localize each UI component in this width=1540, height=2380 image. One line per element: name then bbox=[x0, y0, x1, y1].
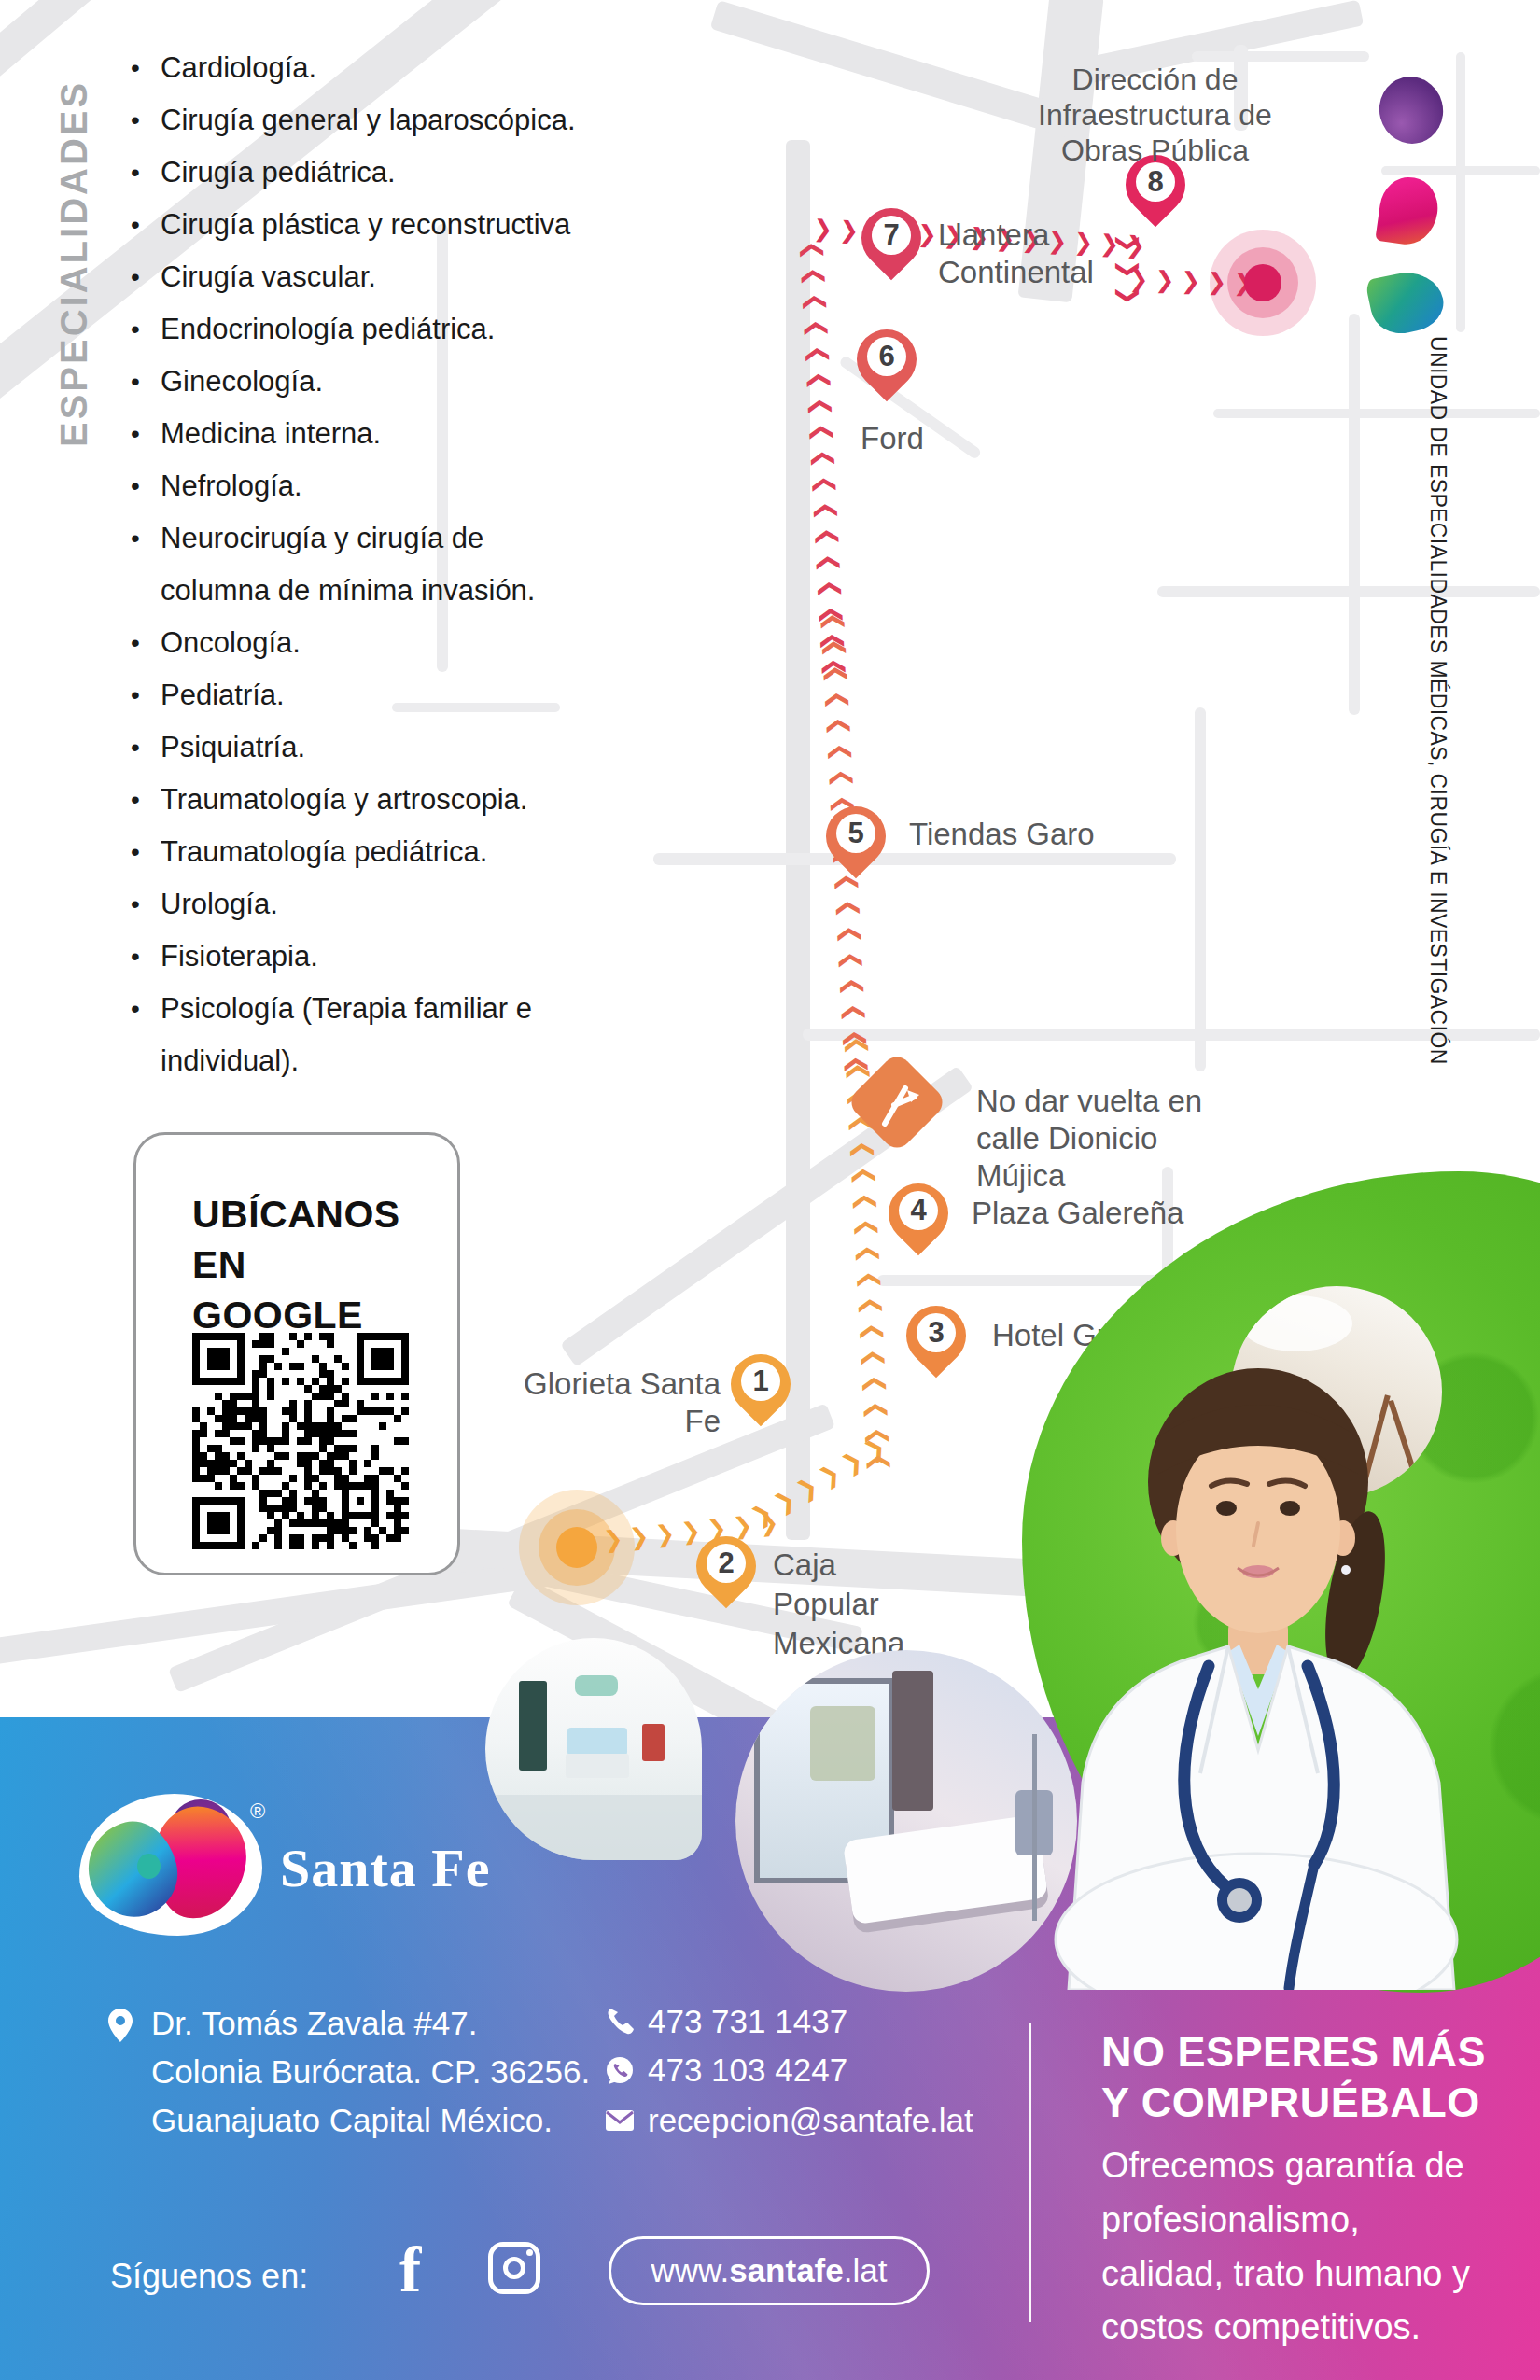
map-pin-4[interactable]: 4 bbox=[889, 1166, 948, 1255]
follow-label: Síguenos en: bbox=[110, 2257, 308, 2296]
map-pin-1[interactable]: 1 bbox=[731, 1337, 791, 1426]
purple-blob-shape bbox=[1372, 69, 1450, 150]
map-label-caja-popular: Caja Popular Mexicana bbox=[773, 1546, 950, 1663]
road-segment bbox=[1157, 586, 1540, 597]
specialty-item: Cardiología. bbox=[161, 42, 646, 94]
road-segment bbox=[1213, 409, 1540, 418]
pin-number: 1 bbox=[741, 1362, 780, 1401]
map-label-glorieta: Glorieta Santa Fe bbox=[504, 1365, 721, 1440]
map-pin-2[interactable]: 2 bbox=[696, 1519, 756, 1608]
map-label-plaza: Plaza Galereña bbox=[972, 1195, 1183, 1232]
unit-side-caption: UNIDAD DE ESPECIALIDADES MÉDICAS, CIRUGÍ… bbox=[1424, 336, 1450, 1083]
whatsapp-icon bbox=[605, 2056, 635, 2086]
road-segment bbox=[1381, 166, 1540, 175]
map-label-ford: Ford bbox=[861, 420, 924, 457]
location-pin-icon bbox=[108, 2009, 133, 2042]
no-turn-sign bbox=[861, 1066, 933, 1139]
specialty-item: Oncología. bbox=[161, 617, 646, 669]
logo-dot-teal bbox=[137, 1854, 161, 1879]
email-address: recepcion@santafe.lat bbox=[648, 2102, 973, 2138]
map-pin-6[interactable]: 6 bbox=[857, 312, 917, 401]
specialty-item: Ginecología. bbox=[161, 356, 646, 408]
website-button[interactable]: www.santafe.lat bbox=[609, 2236, 930, 2305]
doctor-photo bbox=[1017, 1335, 1540, 1990]
pin-number: 8 bbox=[1136, 162, 1175, 202]
instagram-icon[interactable] bbox=[488, 2242, 540, 2294]
road-segment bbox=[653, 853, 1176, 865]
specialty-item: Nefrología. bbox=[161, 460, 646, 512]
santafe-logo bbox=[79, 1794, 262, 1936]
specialty-item: Pediatría. bbox=[161, 669, 646, 721]
email-icon bbox=[605, 2109, 635, 2132]
qr-card[interactable]: UBÍCANOS EN GOOGLE MAPS bbox=[133, 1132, 460, 1575]
address-text: Dr. Tomás Zavala #47. Colonia Burócrata.… bbox=[151, 1999, 590, 2145]
road-segment bbox=[1349, 314, 1360, 715]
specialties-side-title: ESPECIALIDADES bbox=[53, 46, 94, 447]
whatsapp-row[interactable]: 473 103 4247 bbox=[605, 2051, 847, 2089]
promo-title: NO ESPERES MÁS Y COMPRUÉBALO bbox=[1101, 2027, 1503, 2128]
pin-number: 2 bbox=[707, 1544, 746, 1583]
pin-number: 4 bbox=[899, 1191, 938, 1230]
specialty-item: Cirugía plástica y reconstructiva bbox=[161, 199, 646, 251]
specialty-item: Psiquiatría. bbox=[161, 721, 646, 774]
specialty-item: Fisioterapia. bbox=[161, 931, 646, 983]
map-label-direccion: Dirección de Infraestructura de Obras Pú… bbox=[1008, 62, 1302, 168]
start-bullseye bbox=[556, 1527, 597, 1568]
promo-body: Ofrecemos garantía de profesionalismo, c… bbox=[1101, 2139, 1484, 2355]
no-turn-arrow-icon bbox=[861, 1066, 933, 1139]
specialty-item: Medicina interna. bbox=[161, 408, 646, 460]
footer-divider bbox=[1029, 2023, 1031, 2322]
phone-row[interactable]: 473 731 1437 bbox=[605, 2003, 847, 2040]
destination-bullseye bbox=[1244, 264, 1281, 301]
specialty-item: Cirugía vascular. bbox=[161, 251, 646, 303]
specialty-item: Cirugía general y laparoscópica. bbox=[161, 94, 646, 147]
map-label-tiendas-garo: Tiendas Garo bbox=[909, 816, 1095, 853]
brand-name: Santa Fe bbox=[280, 1837, 491, 1899]
specialty-item: Traumatología pediátrica. bbox=[161, 826, 646, 878]
map-pin-7[interactable]: 7 bbox=[861, 190, 921, 280]
facebook-icon[interactable]: f bbox=[399, 2233, 421, 2307]
specialty-item: Urología. bbox=[161, 878, 646, 931]
pin-number: 6 bbox=[867, 337, 906, 376]
road-segment bbox=[1456, 52, 1465, 332]
phone-number: 473 731 1437 bbox=[648, 2003, 847, 2039]
map-pin-5[interactable]: 5 bbox=[826, 789, 886, 878]
map-pin-3[interactable]: 3 bbox=[906, 1288, 966, 1378]
registered-mark: ® bbox=[250, 1799, 265, 1824]
clinic-corridor-photo bbox=[485, 1638, 702, 1860]
phone-icon bbox=[605, 2007, 635, 2037]
email-row[interactable]: recepcion@santafe.lat bbox=[605, 2102, 973, 2139]
website-url: www.santafe.lat bbox=[651, 2252, 888, 2289]
road-segment bbox=[1195, 707, 1206, 1071]
magenta-blob-shape bbox=[1375, 174, 1441, 248]
qr-code[interactable] bbox=[192, 1333, 409, 1549]
specialties-list: Cardiología.Cirugía general y laparoscóp… bbox=[161, 42, 646, 1087]
specialty-item: Endocrinología pediátrica. bbox=[161, 303, 646, 356]
specialty-item: Cirugía pediátrica. bbox=[161, 147, 646, 199]
specialty-item: Psicología (Terapia familiar e individua… bbox=[161, 983, 646, 1087]
specialty-item: Neurocirugía y cirugía de columna de mín… bbox=[161, 512, 646, 617]
map-label-warning: No dar vuelta en calle Dionicio Mújica bbox=[976, 1083, 1247, 1195]
whatsapp-number: 473 103 4247 bbox=[648, 2051, 847, 2088]
pin-number: 7 bbox=[872, 216, 911, 255]
map-label-llantera: Llantera Continental bbox=[938, 217, 1125, 291]
specialty-item: Traumatología y artroscopia. bbox=[161, 774, 646, 826]
teal-blob-shape bbox=[1365, 266, 1449, 340]
pin-number: 3 bbox=[917, 1313, 956, 1352]
flyer-page: ❯❯❯❯❯❯❯ ❯❯❯❯❯❯ ❯❯❯❯❯❯❯❯❯❯❯❯❯❯❯❯❯ ❯❯❯❯❯❯❯… bbox=[0, 0, 1540, 2380]
pin-number: 5 bbox=[836, 814, 875, 853]
road-segment bbox=[1192, 51, 1369, 62]
